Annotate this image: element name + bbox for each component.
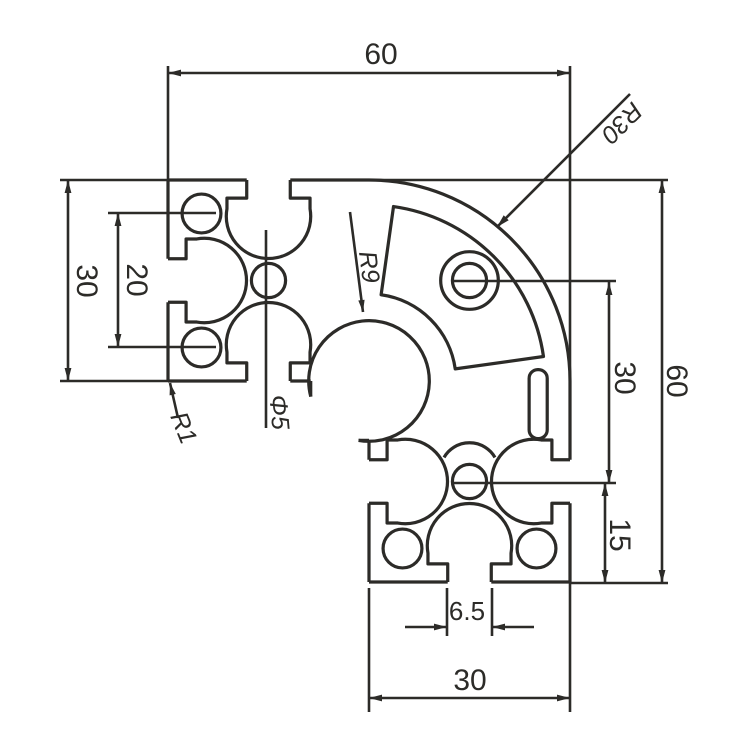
dim-hole-to-bottom-right: 15 xyxy=(603,518,636,551)
core-cavity-arc xyxy=(309,321,430,442)
dim-slot-mouth-width: 6.5 xyxy=(449,596,485,626)
t-slot-inner-right-leg xyxy=(369,439,448,523)
t-slot-left xyxy=(168,238,247,322)
dim-hole-span-left: 20 xyxy=(120,263,153,296)
t-slot-top xyxy=(226,180,310,259)
dimension-labels: 60 60 30 15 30 20 6.5 30 R30 R9 Φ5 R1 xyxy=(70,38,693,697)
dim-right-height: 60 xyxy=(660,364,693,397)
right-wall-channel xyxy=(529,370,547,439)
center-web-dome xyxy=(444,443,495,458)
callout-outer-corner-radius: R30 xyxy=(595,97,647,149)
t-slot-bottom xyxy=(427,503,511,582)
extension-lines xyxy=(60,66,668,712)
fan-channel xyxy=(381,207,543,369)
t-slot-right xyxy=(491,439,570,523)
dim-leg-width-bottom: 30 xyxy=(453,664,486,697)
drawing-canvas: 60 60 30 15 30 20 6.5 30 R30 R9 Φ5 R1 xyxy=(0,0,750,750)
leader-outer-radius xyxy=(497,94,630,227)
profile-section xyxy=(168,180,570,582)
center-bore-left-square xyxy=(251,263,285,297)
technical-drawing: 60 60 30 15 30 20 6.5 30 R30 R9 Φ5 R1 xyxy=(0,0,750,750)
dimension-lines xyxy=(60,66,668,712)
dimension-arrows xyxy=(65,70,666,702)
callout-center-hole-diameter: Φ5 xyxy=(264,394,295,431)
center-bore-right-square xyxy=(452,464,486,498)
dim-hole-span-right: 30 xyxy=(608,361,641,394)
profile-outline xyxy=(168,180,570,582)
callout-core-arc-radius: R9 xyxy=(353,249,385,284)
corner-bore-bottom-sq-right xyxy=(517,529,556,568)
dim-top-width: 60 xyxy=(364,38,397,71)
t-slot-inner-top-leg xyxy=(226,302,310,381)
dim-leg-height-left: 30 xyxy=(70,264,103,297)
callout-corner-fillet-radius: R1 xyxy=(164,408,202,448)
corner-bore-bottom-sq-left xyxy=(383,529,422,568)
